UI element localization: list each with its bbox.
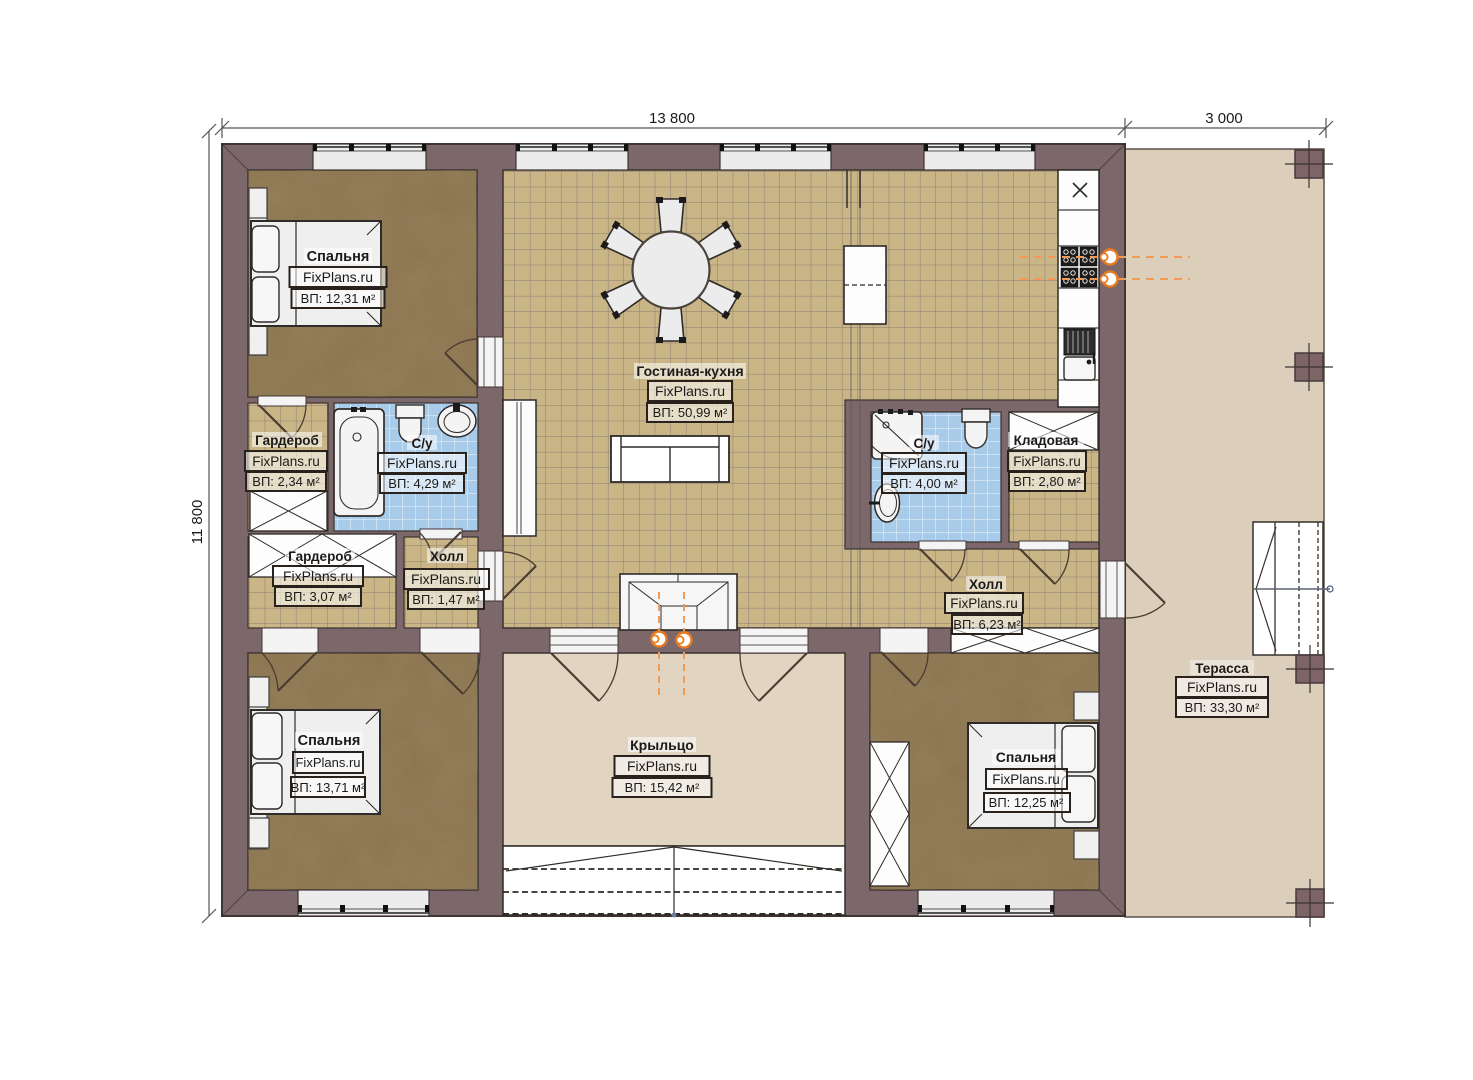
svg-text:11 800: 11 800 [189, 500, 206, 545]
svg-text:ВП: 2,34 м²: ВП: 2,34 м² [252, 474, 320, 489]
svg-text:Гостиная-кухня: Гостиная-кухня [636, 363, 743, 379]
svg-text:Крыльцо: Крыльцо [630, 737, 694, 753]
svg-text:FixPlans.ru: FixPlans.ru [252, 454, 320, 469]
svg-text:С/у: С/у [411, 436, 433, 451]
svg-text:FixPlans.ru: FixPlans.ru [950, 596, 1018, 611]
svg-text:С/у: С/у [913, 436, 935, 451]
svg-text:ВП: 4,00 м²: ВП: 4,00 м² [890, 476, 958, 491]
svg-text:FixPlans.ru: FixPlans.ru [992, 772, 1060, 787]
svg-text:ВП: 4,29 м²: ВП: 4,29 м² [388, 476, 456, 491]
svg-text:Гардероб: Гардероб [288, 549, 352, 564]
svg-text:Холл: Холл [969, 577, 1003, 592]
svg-text:13 800: 13 800 [649, 110, 695, 127]
svg-text:ВП: 3,07 м²: ВП: 3,07 м² [284, 589, 352, 604]
svg-text:ВП: 13,71 м²: ВП: 13,71 м² [291, 780, 366, 795]
svg-text:FixPlans.ru: FixPlans.ru [655, 383, 725, 399]
svg-text:ВП: 33,30 м²: ВП: 33,30 м² [1185, 700, 1260, 715]
svg-text:FixPlans.ru: FixPlans.ru [889, 455, 959, 471]
svg-text:FixPlans.ru: FixPlans.ru [411, 571, 481, 587]
svg-text:FixPlans.ru: FixPlans.ru [627, 758, 697, 774]
svg-text:ВП: 1,47 м²: ВП: 1,47 м² [412, 592, 480, 607]
svg-text:FixPlans.ru: FixPlans.ru [283, 568, 353, 584]
svg-text:Спальня: Спальня [298, 733, 361, 749]
svg-text:FixPlans.ru: FixPlans.ru [303, 269, 373, 285]
svg-text:FixPlans.ru: FixPlans.ru [1187, 679, 1257, 695]
svg-text:ВП: 2,80 м²: ВП: 2,80 м² [1013, 474, 1081, 489]
svg-text:FixPlans.ru: FixPlans.ru [1013, 454, 1081, 469]
svg-text:ВП: 50,99 м²: ВП: 50,99 м² [653, 405, 728, 420]
svg-text:ВП: 12,25 м²: ВП: 12,25 м² [989, 795, 1064, 810]
svg-text:ВП: 15,42 м²: ВП: 15,42 м² [625, 780, 700, 795]
svg-text:ВП: 12,31 м²: ВП: 12,31 м² [301, 291, 376, 306]
svg-text:Терасса: Терасса [1195, 661, 1249, 676]
svg-text:ВП: 6,23 м²: ВП: 6,23 м² [953, 617, 1021, 632]
svg-text:Гардероб: Гардероб [255, 433, 319, 448]
svg-text:FixPlans.ru: FixPlans.ru [295, 755, 360, 770]
svg-text:Кладовая: Кладовая [1014, 433, 1079, 448]
svg-text:Спальня: Спальня [307, 249, 370, 265]
svg-text:FixPlans.ru: FixPlans.ru [387, 455, 457, 471]
svg-text:3 000: 3 000 [1205, 110, 1243, 127]
svg-text:Спальня: Спальня [996, 749, 1056, 765]
svg-text:Холл: Холл [430, 549, 464, 564]
